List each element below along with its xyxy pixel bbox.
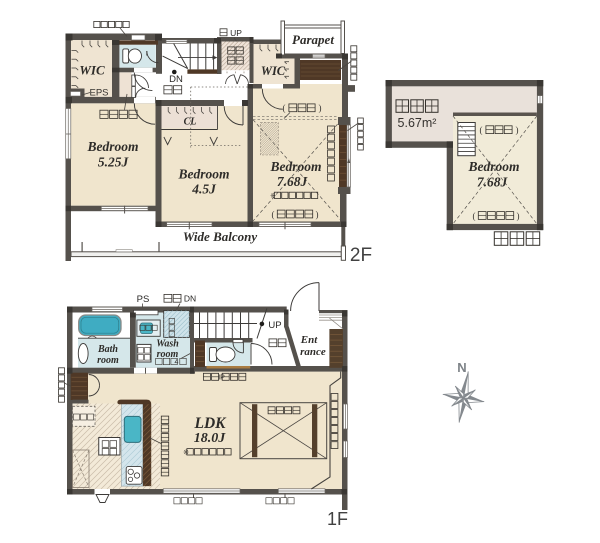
svg-text:2F: 2F [350,245,372,266]
svg-text:5.25J: 5.25J [98,155,130,170]
svg-text:WIC: WIC [79,63,105,78]
svg-text:DN: DN [184,294,196,304]
svg-text:Parapet: Parapet [292,32,334,47]
svg-text:WIC: WIC [261,64,286,78]
svg-text:Bath: Bath [97,344,118,355]
svg-text:※: ※ [270,193,276,200]
svg-text:1F: 1F [327,509,348,529]
svg-text:18.0J: 18.0J [194,431,227,446]
svg-text:(: ( [272,210,275,220]
svg-text:PS: PS [137,294,150,305]
svg-text:Bedroom: Bedroom [177,167,229,182]
svg-text:Bedroom: Bedroom [467,159,519,174]
svg-text:Wide Balcony: Wide Balcony [183,229,257,244]
svg-text:): ) [516,125,519,135]
svg-text:N: N [457,360,466,375]
svg-text:Ent: Ent [300,334,318,346]
svg-text:※: ※ [183,450,189,457]
svg-text:4.5J: 4.5J [191,182,217,197]
svg-text:DN: DN [169,74,183,85]
svg-text:(: ( [480,125,483,135]
svg-text:(: ( [283,103,286,113]
svg-text:(: ( [473,211,476,221]
svg-text:Bedroom: Bedroom [269,159,321,174]
svg-text:rance: rance [300,346,326,358]
svg-text:Bedroom: Bedroom [86,139,138,154]
svg-text:room: room [97,355,119,366]
svg-text:LDK: LDK [194,415,228,432]
svg-text:): ) [316,210,319,220]
svg-text:UP: UP [230,28,242,38]
svg-text:5.67m²: 5.67m² [398,116,437,130]
svg-text:4: 4 [175,359,179,366]
svg-text:7.68J: 7.68J [477,175,509,190]
svg-text:7.68J: 7.68J [277,174,309,189]
svg-text:CL: CL [184,117,197,128]
svg-text:UP: UP [268,320,281,331]
svg-text:): ) [517,211,520,221]
svg-text:Wash: Wash [156,339,179,350]
svg-text:EPS: EPS [89,88,108,99]
svg-text:): ) [319,103,322,113]
